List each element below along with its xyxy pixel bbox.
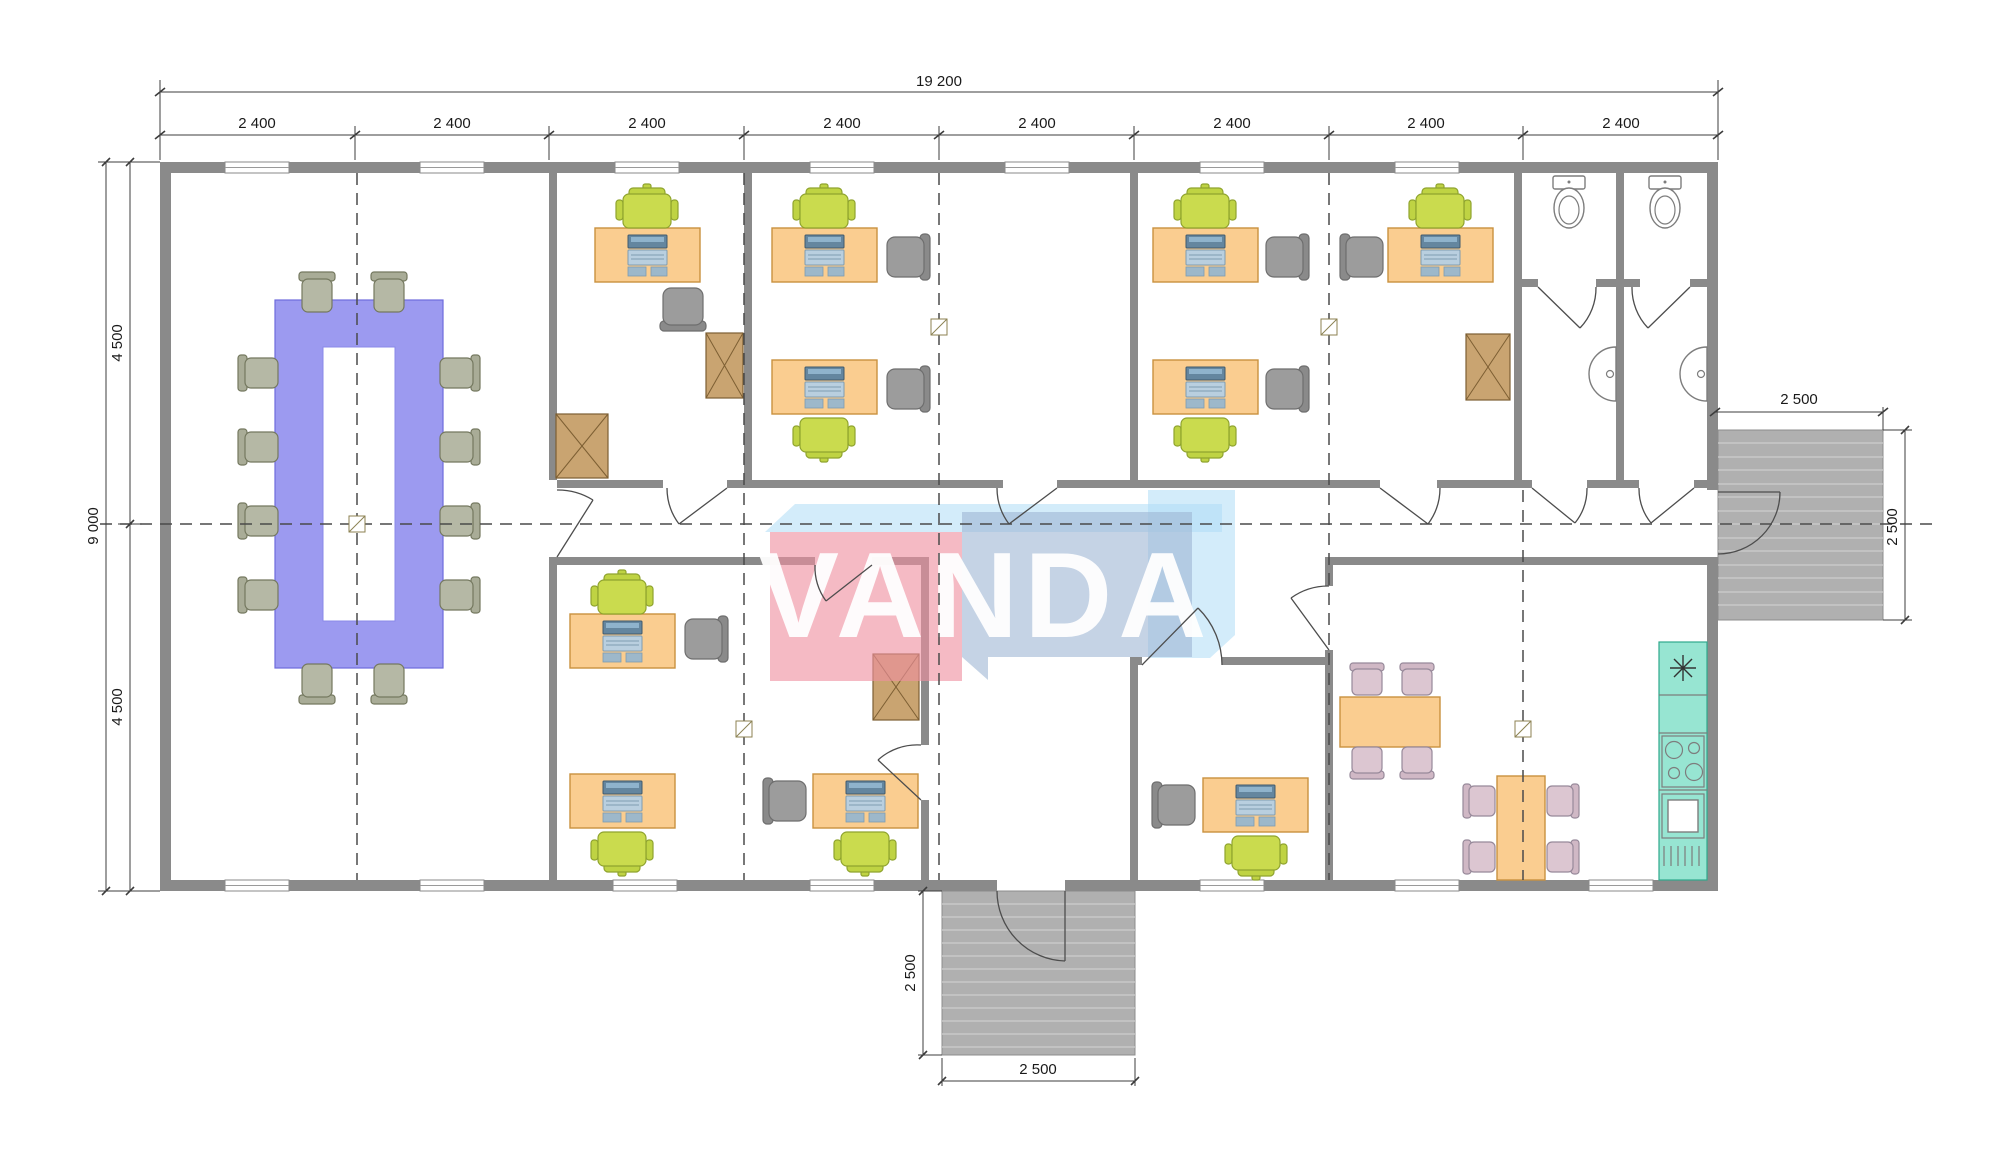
dimension-label: 2 400: [1018, 115, 1056, 132]
office-2: [772, 184, 930, 462]
guest-chair: [763, 778, 806, 824]
window: [810, 162, 874, 173]
task-chair: [591, 832, 653, 876]
guest-chair: [1266, 234, 1309, 280]
guest-chair: [1340, 234, 1383, 280]
office-1: [556, 184, 743, 478]
kitchen-counter: [1659, 642, 1707, 880]
meeting-chair: [238, 503, 278, 539]
task-chair: [834, 832, 896, 876]
meeting-chair: [440, 355, 480, 391]
meeting-chair: [238, 429, 278, 465]
meeting-chair: [371, 272, 407, 312]
dining-chair: [1547, 784, 1579, 818]
task-chair: [1409, 184, 1471, 228]
toilet: [1553, 176, 1585, 228]
dining-chair: [1350, 663, 1384, 695]
window: [1200, 162, 1264, 173]
guest-chair: [887, 234, 930, 280]
cabinet: [556, 414, 608, 478]
outlet-icon: [349, 516, 365, 532]
task-chair: [1225, 836, 1287, 880]
desk: [1203, 778, 1308, 832]
dimension-label: 2 400: [433, 115, 471, 132]
outlet-icon: [736, 721, 752, 737]
window: [420, 880, 484, 891]
window: [1395, 162, 1459, 173]
dining-chair: [1400, 663, 1434, 695]
meeting-room: [238, 272, 480, 704]
desk: [595, 228, 700, 282]
meeting-chair: [238, 355, 278, 391]
task-chair: [1174, 418, 1236, 462]
desk: [1153, 228, 1258, 282]
dimension-label: 2 400: [823, 115, 861, 132]
dimension-label: 2 500: [902, 954, 919, 992]
window: [810, 880, 874, 891]
dimension-label: 4 500: [109, 688, 126, 726]
dining-chair: [1547, 840, 1579, 874]
desk: [772, 360, 877, 414]
dimension-label: 2 400: [1407, 115, 1445, 132]
dimension-label: 2 500: [1780, 391, 1818, 408]
logo-text: VANDA: [758, 527, 1213, 663]
office-5: [1152, 778, 1308, 880]
task-chair: [616, 184, 678, 228]
task-chair: [591, 570, 653, 614]
meeting-chair: [440, 577, 480, 613]
window: [225, 880, 289, 891]
window: [1589, 880, 1653, 891]
guest-chair: [1152, 782, 1195, 828]
cabinet: [1466, 334, 1510, 400]
window: [613, 880, 677, 891]
dimension-label: 2 400: [628, 115, 666, 132]
sink: [1589, 347, 1616, 401]
window: [615, 162, 679, 173]
desk: [772, 228, 877, 282]
watermark: VANDA: [758, 490, 1235, 681]
stairs-bottom: [942, 891, 1135, 1055]
window: [1395, 880, 1459, 891]
outlet-icon: [931, 319, 947, 335]
desk: [1153, 360, 1258, 414]
window: [420, 162, 484, 173]
meeting-chair: [440, 429, 480, 465]
meeting-chair: [440, 503, 480, 539]
toilets: [1553, 176, 1707, 401]
dimension-label: 2 400: [1602, 115, 1640, 132]
dimension-label: 2 400: [238, 115, 276, 132]
outlet-icon: [1515, 721, 1531, 737]
task-chair: [793, 418, 855, 462]
dining-table: [1497, 776, 1545, 880]
guest-chair: [1266, 366, 1309, 412]
dining-chair: [1350, 747, 1384, 779]
window: [1200, 880, 1264, 891]
window: [225, 162, 289, 173]
stairs-right: [1718, 430, 1883, 620]
dimension-label: 2 500: [1884, 508, 1901, 546]
guest-chair: [887, 366, 930, 412]
dimension-label: 2 500: [1019, 1061, 1057, 1078]
toilet: [1649, 176, 1681, 228]
desk: [1388, 228, 1493, 282]
dining-chair: [1463, 784, 1495, 818]
dining-table: [1340, 697, 1440, 747]
dimension-label: 4 500: [109, 324, 126, 362]
meeting-chair: [238, 577, 278, 613]
dining-chair: [1463, 840, 1495, 874]
meeting-chair: [299, 664, 335, 704]
dimension-label: 9 000: [85, 507, 102, 545]
dining-chair: [1400, 747, 1434, 779]
conference-table-center: [323, 347, 395, 621]
task-chair: [793, 184, 855, 228]
dimension-label: 2 400: [1213, 115, 1251, 132]
guest-chair: [685, 616, 728, 662]
guest-chair: [660, 288, 706, 331]
sink: [1680, 347, 1707, 401]
meeting-chair: [371, 664, 407, 704]
task-chair: [1174, 184, 1236, 228]
meeting-chair: [299, 272, 335, 312]
desk: [570, 614, 675, 668]
desk: [570, 774, 675, 828]
dimension-label: 19 200: [916, 73, 962, 90]
floor-plan: VANDA: [0, 0, 2000, 1160]
cabinet: [706, 333, 743, 398]
window: [1005, 162, 1069, 173]
outlet-icon: [1321, 319, 1337, 335]
